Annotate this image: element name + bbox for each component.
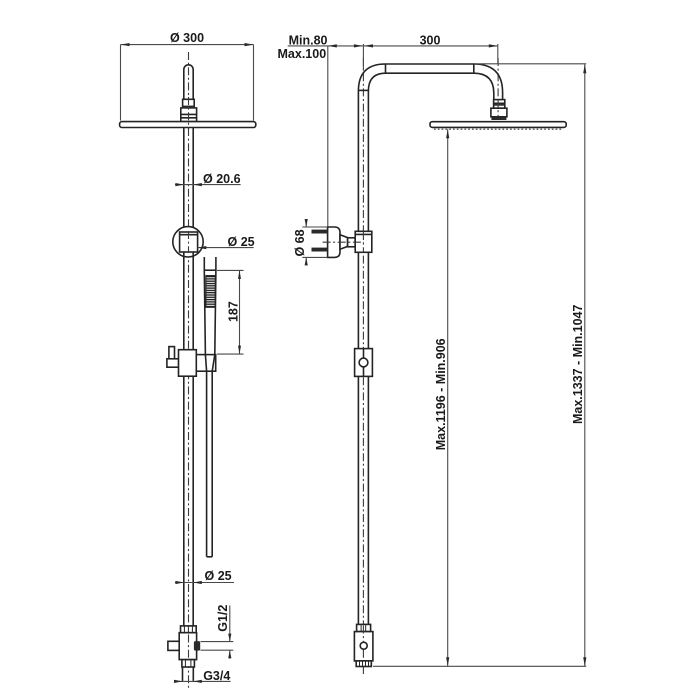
svg-text:Ø 25: Ø 25 [228, 235, 255, 249]
svg-text:Ø 68: Ø 68 [293, 229, 307, 256]
svg-text:Max.100: Max.100 [278, 47, 327, 61]
svg-text:G1/2: G1/2 [216, 605, 230, 632]
svg-text:Ø 300: Ø 300 [170, 31, 204, 45]
svg-text:Max.1337 - Min.1047: Max.1337 - Min.1047 [571, 305, 585, 425]
svg-text:Ø 20.6: Ø 20.6 [203, 172, 241, 186]
svg-text:Max.1196 - Min.906: Max.1196 - Min.906 [434, 338, 448, 450]
svg-text:300: 300 [420, 33, 441, 47]
svg-text:Ø 25: Ø 25 [205, 569, 232, 583]
svg-text:187: 187 [226, 301, 240, 322]
svg-text:G3/4: G3/4 [203, 669, 230, 683]
